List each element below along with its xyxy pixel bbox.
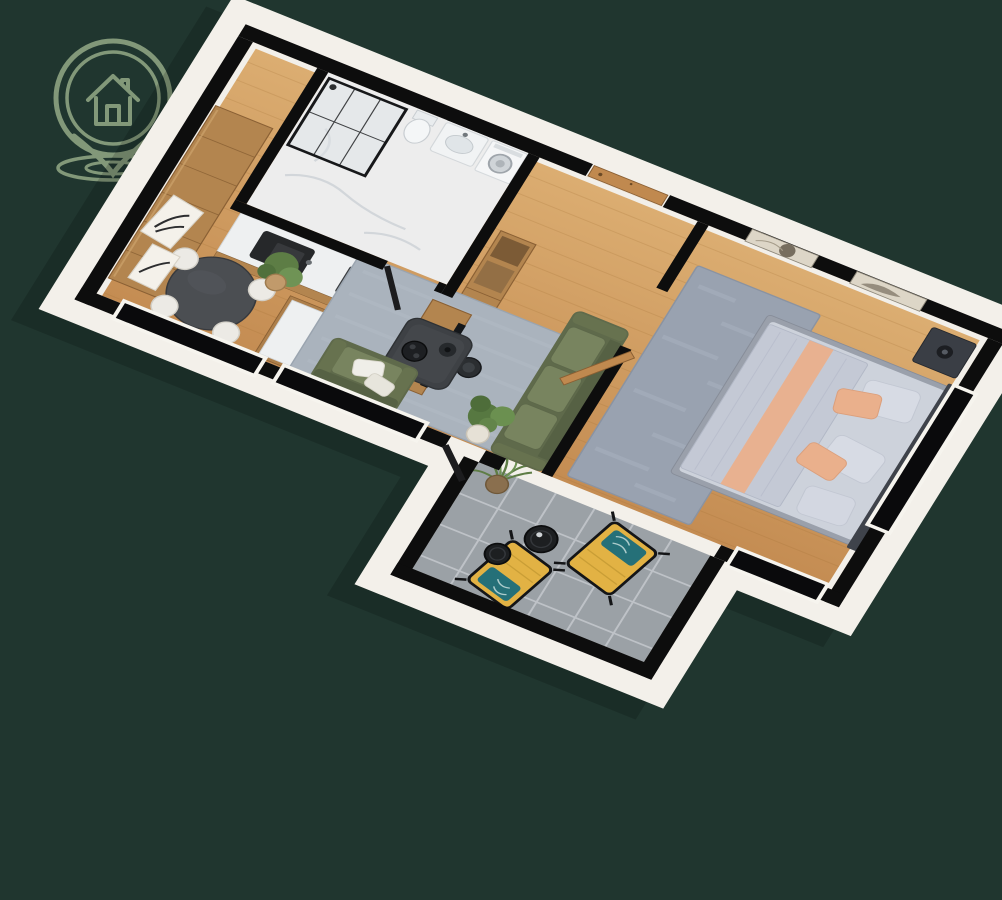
scene-background (0, 0, 1002, 900)
